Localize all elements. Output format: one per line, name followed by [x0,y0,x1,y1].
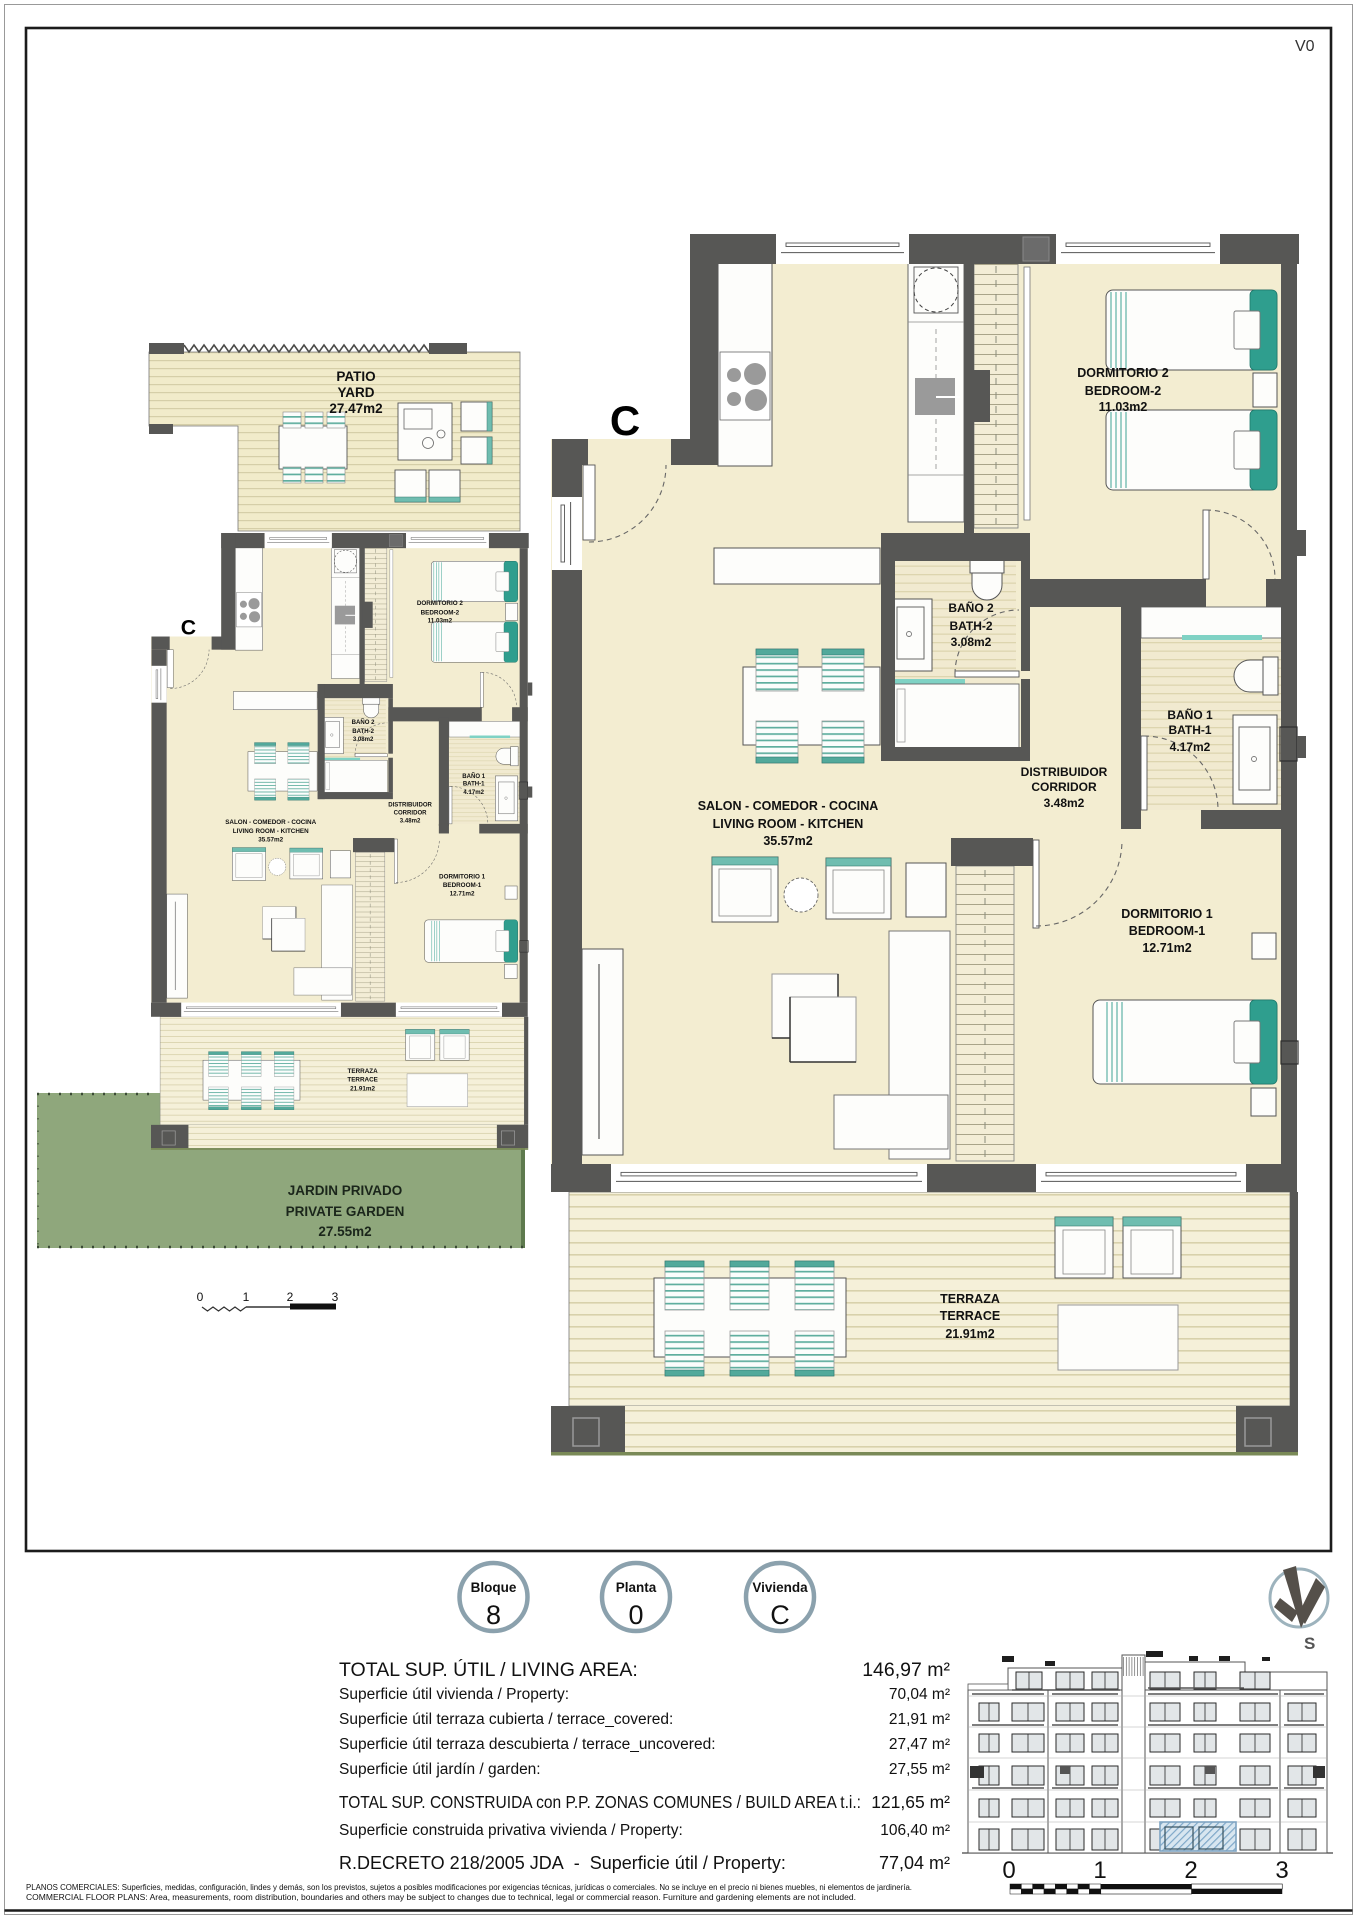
svg-text:PLANOS COMERCIALES: Superficie: PLANOS COMERCIALES: Superficies, medidas… [26,1883,912,1892]
svg-text:8: 8 [486,1600,501,1630]
svg-text:106,40 m²: 106,40 m² [880,1822,950,1839]
svg-text:COMMERCIAL FLOOR PLANS: Area,: COMMERCIAL FLOOR PLANS: Area, measuremen… [26,1893,856,1902]
svg-text:3: 3 [1275,1857,1288,1884]
svg-text:0: 0 [628,1600,643,1630]
svg-text:146,97 m²: 146,97 m² [862,1659,950,1681]
svg-text:YARD: YARD [337,385,374,400]
svg-text:1: 1 [1093,1857,1106,1884]
svg-text:2: 2 [287,1290,294,1304]
svg-text:27.55m2: 27.55m2 [318,1224,371,1239]
svg-text:Superficie útil jardín / garde: Superficie útil jardín / garden: [339,1761,541,1778]
svg-text:PRIVATE GARDEN: PRIVATE GARDEN [286,1204,405,1219]
svg-text:C: C [770,1600,790,1630]
svg-text:27,55 m²: 27,55 m² [889,1761,950,1778]
svg-text:77,04 m²: 77,04 m² [879,1853,950,1873]
svg-text:27.47m2: 27.47m2 [329,401,382,416]
svg-text:R.DECRETO 218/2005 JDA - Sup: R.DECRETO 218/2005 JDA - Superficie útil… [339,1853,786,1873]
svg-text:PATIO: PATIO [336,369,375,384]
svg-text:0: 0 [197,1290,204,1304]
svg-text:TOTAL SUP. CONSTRUIDA con P.P.: TOTAL SUP. CONSTRUIDA con P.P. ZONAS COM… [339,1792,861,1812]
svg-text:27,47 m²: 27,47 m² [889,1736,950,1753]
svg-text:V0: V0 [1295,38,1315,55]
svg-text:S: S [1304,1634,1315,1653]
svg-text:0: 0 [1002,1857,1015,1884]
svg-text:Vivienda: Vivienda [752,1580,808,1595]
svg-text:70,04 m²: 70,04 m² [889,1686,950,1703]
svg-text:2: 2 [1184,1857,1197,1884]
svg-text:Superficie construida privativ: Superficie construida privativa vivienda… [339,1822,683,1839]
svg-text:121,65 m²: 121,65 m² [871,1792,950,1812]
svg-text:1: 1 [243,1290,250,1304]
svg-text:21,91 m²: 21,91 m² [889,1711,950,1728]
svg-text:Superficie útil terraza descub: Superficie útil terraza descubierta / te… [339,1736,716,1753]
svg-text:Planta: Planta [616,1580,657,1595]
svg-text:3: 3 [332,1290,339,1304]
svg-text:Bloque: Bloque [471,1580,517,1595]
svg-text:TOTAL SUP. ÚTIL / LIVING AREA:: TOTAL SUP. ÚTIL / LIVING AREA: [339,1658,638,1681]
svg-text:Superficie útil vivienda / Pro: Superficie útil vivienda / Property: [339,1686,569,1703]
svg-text:Superficie útil terraza cubier: Superficie útil terraza cubierta / terra… [339,1711,673,1728]
svg-text:JARDIN PRIVADO: JARDIN PRIVADO [288,1183,403,1198]
